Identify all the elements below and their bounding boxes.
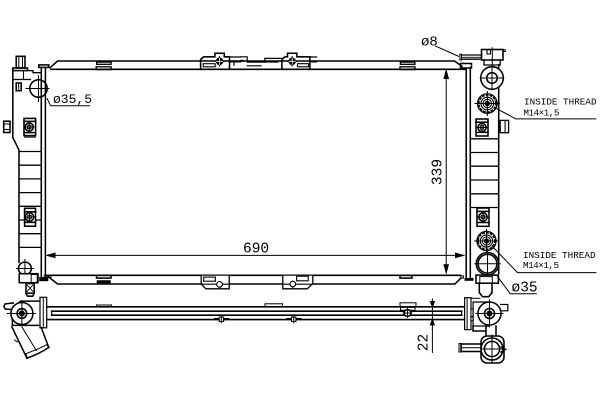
svg-text:INSIDE THREAD: INSIDE THREAD <box>524 96 597 107</box>
svg-text:22: 22 <box>417 334 433 351</box>
svg-text:M14×1,5: M14×1,5 <box>523 107 559 118</box>
svg-text:M14×1,5: M14×1,5 <box>523 260 559 271</box>
svg-text:ø8: ø8 <box>421 34 438 50</box>
svg-text:339: 339 <box>431 159 447 185</box>
svg-text:ø35,5: ø35,5 <box>53 92 92 107</box>
svg-text:690: 690 <box>243 242 269 258</box>
